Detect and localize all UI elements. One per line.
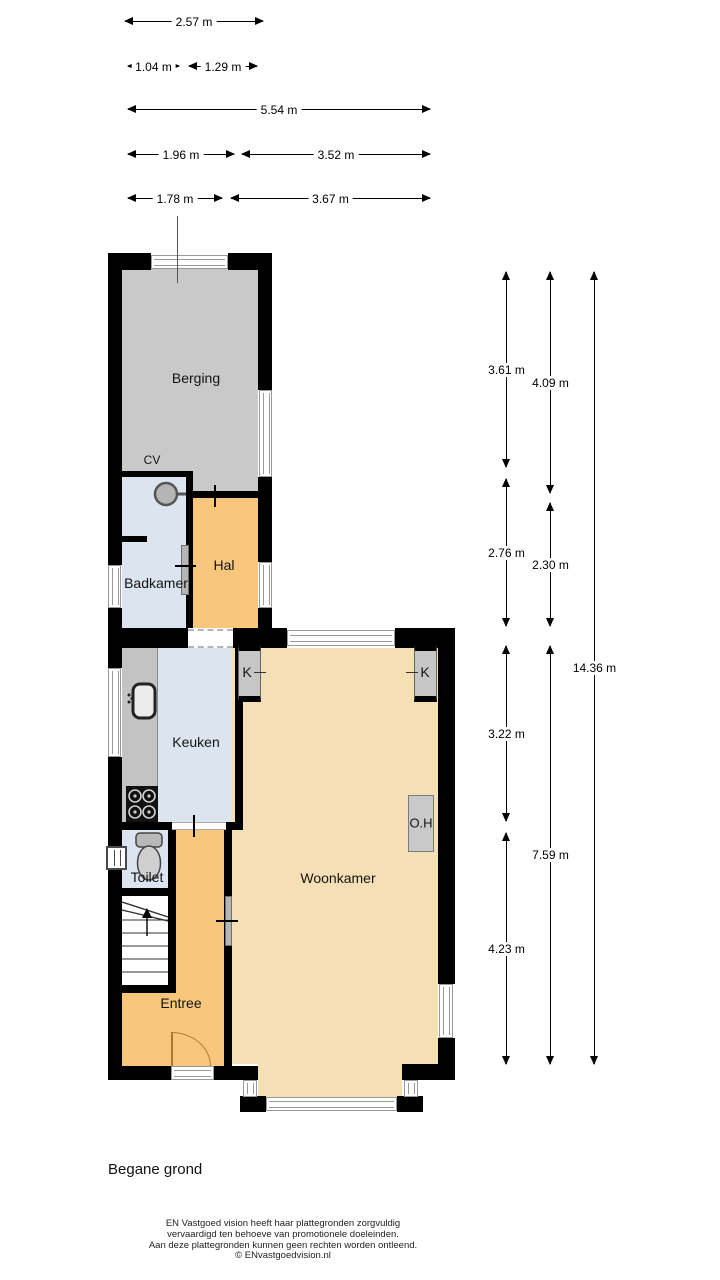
- stairs-icon: [122, 896, 168, 985]
- disclaimer-line: © ENvastgoedvision.nl: [133, 1251, 433, 1262]
- wall: [258, 253, 272, 390]
- dimension-value: 4.23 m: [484, 942, 529, 956]
- dimension-horizontal: 1.29 m: [188, 60, 258, 73]
- plan-title: Begane grond: [108, 1161, 202, 1178]
- dimension-value: 3.67 m: [308, 192, 353, 206]
- room-label-keuken: Keuken: [172, 734, 219, 750]
- dimension-vertical: 3.22 m: [500, 645, 513, 822]
- wall-bay-corner: [240, 1096, 266, 1112]
- door-opening: [172, 822, 226, 830]
- dimension-value: 2.76 m: [484, 546, 529, 560]
- dimension-value: 4.09 m: [528, 376, 573, 390]
- floor-woonkamer-bay: [258, 1064, 402, 1098]
- dimension-value: 1.29 m: [201, 60, 246, 74]
- door-leaf: [171, 1032, 173, 1066]
- floorplan-canvas: Berging CV Badkamer Hal Keuken Toilet En…: [0, 0, 720, 1280]
- dimension-value: 2.30 m: [528, 558, 573, 572]
- label-kast-left: K: [242, 664, 251, 680]
- door-tick: [214, 485, 216, 507]
- label-fireplace: O.H: [409, 816, 432, 831]
- dimension-value: 3.52 m: [314, 148, 359, 162]
- dimension-horizontal: 3.52 m: [241, 148, 431, 161]
- wall-opening: [188, 629, 233, 648]
- door-tick: [216, 920, 238, 922]
- wall: [108, 1066, 171, 1080]
- door-tick: [193, 815, 195, 837]
- meter-cupboard: [106, 846, 127, 870]
- window: [108, 668, 121, 757]
- room-label-badkamer: Badkamer: [124, 575, 188, 591]
- dimension-value: 5.54 m: [257, 103, 302, 117]
- window: [259, 390, 272, 477]
- dimension-vertical: 14.36 m: [588, 271, 601, 1065]
- dimension-vertical: 4.23 m: [500, 832, 513, 1065]
- dimension-value: 3.22 m: [484, 727, 529, 741]
- dimension-value: 1.96 m: [159, 148, 204, 162]
- wall: [186, 491, 272, 498]
- dimension-horizontal: 1.78 m: [127, 192, 223, 205]
- dimension-value: 3.61 m: [484, 363, 529, 377]
- floor-woonkamer: [232, 648, 438, 1064]
- wall: [224, 830, 232, 1066]
- door-tick: [175, 565, 196, 567]
- dimension-vertical: 2.76 m: [500, 478, 513, 627]
- dimension-value: 2.57 m: [172, 15, 217, 29]
- stove-icon: [126, 786, 158, 822]
- wall: [402, 1064, 455, 1080]
- dimension-horizontal: 1.04 m: [127, 60, 180, 73]
- wall: [108, 471, 193, 477]
- room-label-toilet: Toilet: [131, 869, 164, 885]
- wall-bay-corner: [397, 1096, 423, 1112]
- wall: [108, 757, 122, 846]
- disclaimer-line: vervaardigd ten behoeve van promotionele…: [133, 1230, 433, 1241]
- dimension-vertical: 2.30 m: [544, 502, 557, 627]
- bay-window: [266, 1097, 397, 1111]
- label-cv: CV: [144, 453, 161, 467]
- bay-window-side: [404, 1080, 418, 1097]
- floor-entree: [176, 830, 224, 993]
- dimension-value: 1.04 m: [131, 60, 176, 74]
- wall: [108, 648, 122, 668]
- wall: [108, 628, 188, 648]
- dimension-horizontal: 2.57 m: [124, 15, 264, 28]
- door-leaf-line: [177, 216, 178, 283]
- window: [439, 984, 453, 1038]
- dimension-horizontal: 3.67 m: [230, 192, 431, 205]
- room-label-entree: Entree: [160, 995, 201, 1011]
- wall: [168, 830, 176, 993]
- wall: [108, 888, 176, 896]
- wall: [214, 1066, 258, 1080]
- dimension-vertical: 7.59 m: [544, 645, 557, 1065]
- dimension-horizontal: 1.96 m: [127, 148, 235, 161]
- disclaimer-text: EN Vastgoed vision heeft haar plattegron…: [133, 1219, 433, 1262]
- wall: [108, 253, 122, 565]
- room-label-berging: Berging: [172, 370, 220, 386]
- wall: [438, 648, 455, 984]
- dimension-vertical: 4.09 m: [544, 271, 557, 494]
- wall: [226, 822, 243, 830]
- wall-partition: [122, 536, 147, 542]
- wall: [258, 477, 272, 562]
- leader-line: [254, 672, 266, 673]
- dimension-vertical: 3.61 m: [500, 271, 513, 468]
- dimension-value: 1.78 m: [153, 192, 198, 206]
- room-label-hal: Hal: [213, 557, 234, 573]
- wall: [108, 870, 122, 1066]
- window: [287, 630, 395, 646]
- dimension-horizontal: 5.54 m: [127, 103, 431, 116]
- window: [151, 255, 228, 269]
- sink-icon: [126, 680, 158, 722]
- leader-line: [406, 672, 418, 673]
- dimension-value: 14.36 m: [569, 661, 620, 675]
- bay-window-side: [243, 1080, 257, 1097]
- window: [259, 562, 272, 608]
- window: [108, 565, 121, 608]
- wall: [108, 822, 172, 830]
- room-label-woonkamer: Woonkamer: [300, 870, 375, 886]
- wall: [108, 985, 176, 993]
- dimension-value: 7.59 m: [528, 848, 573, 862]
- label-kast-right: K: [420, 664, 429, 680]
- front-door-threshold: [171, 1066, 214, 1080]
- door-swing-arc: [171, 1032, 211, 1066]
